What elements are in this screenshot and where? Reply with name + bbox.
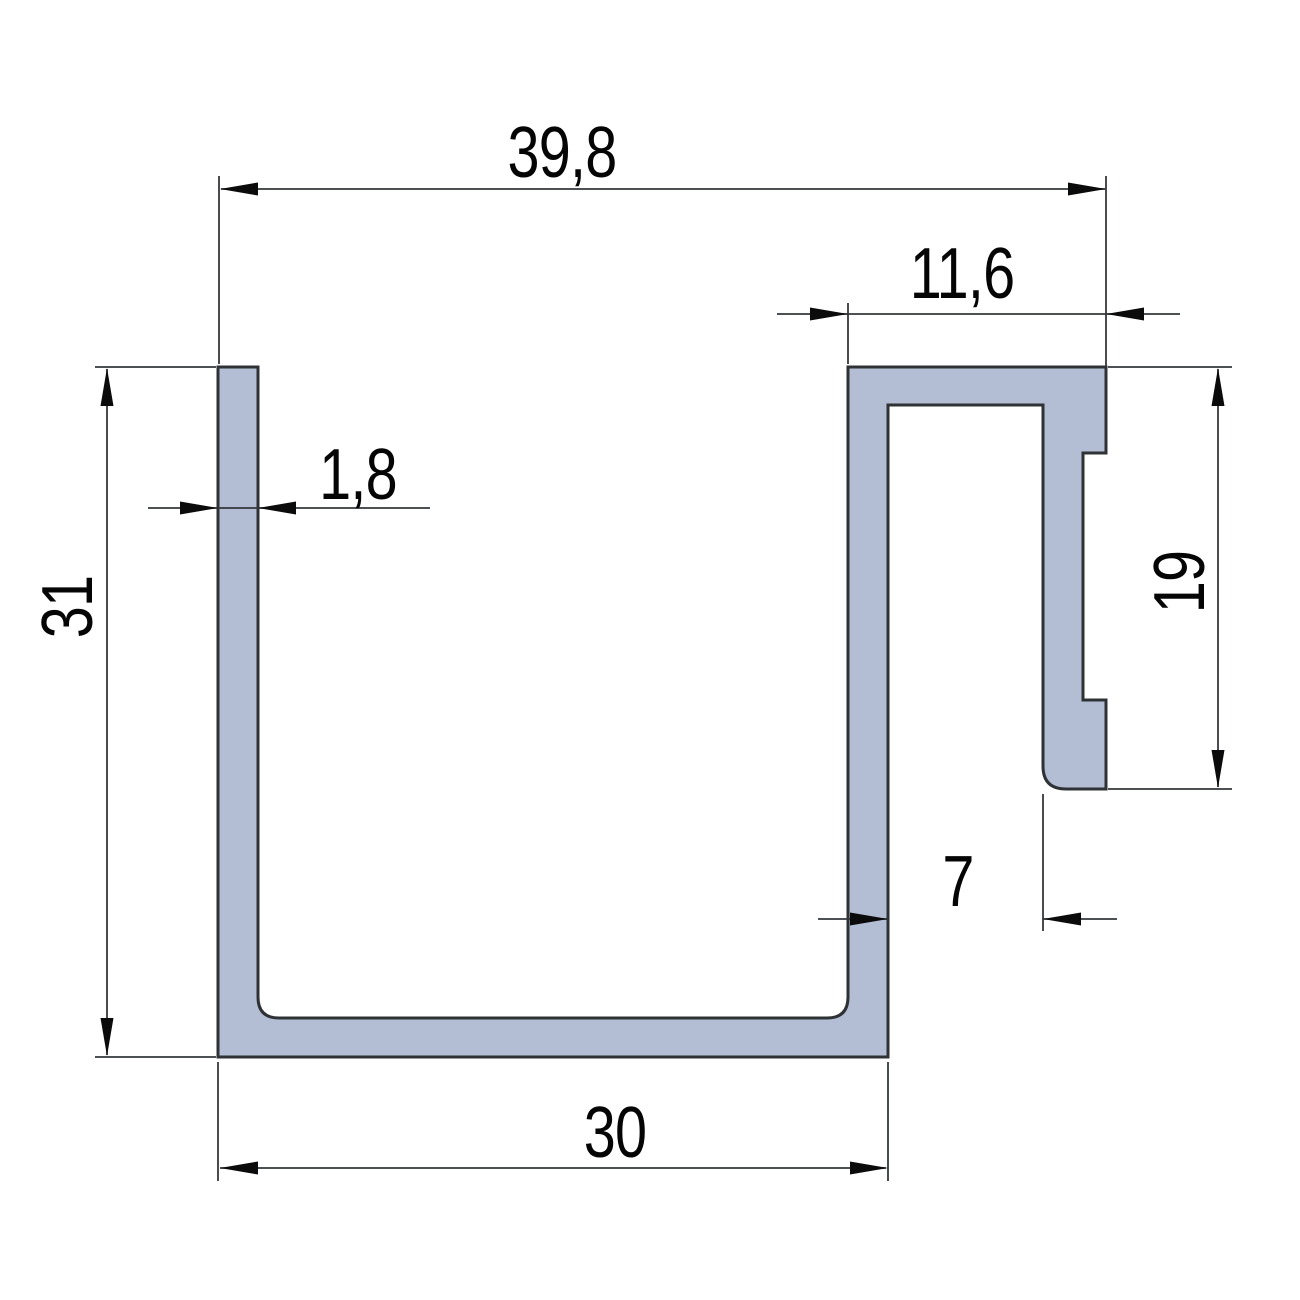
dim-label-overall-height: 31	[27, 576, 108, 638]
arrowhead-right-icon	[850, 1162, 888, 1175]
dim-wall-thickness: 1,8	[148, 434, 430, 515]
arrowhead-right-icon	[1068, 183, 1106, 196]
dim-label-wall-thickness: 1,8	[319, 434, 397, 515]
profile-drawing: 39,8 11,6 1,8 31 19	[0, 0, 1300, 1300]
drawing-page: 39,8 11,6 1,8 31 19	[0, 0, 1300, 1300]
arrowhead-left-icon	[220, 183, 258, 196]
arrowhead-up-icon	[1212, 368, 1225, 406]
dim-label-channel-width: 30	[584, 1092, 646, 1173]
dim-hook-height: 19	[1108, 367, 1232, 789]
arrowhead-up-icon	[101, 368, 114, 406]
dim-channel-width: 30	[218, 1062, 888, 1181]
dim-label-hook-flange-width: 11,6	[910, 233, 1015, 314]
dim-overall-height: 31	[27, 367, 216, 1057]
dim-hook-flange-width: 11,6	[777, 233, 1180, 364]
arrowhead-left-icon	[1106, 308, 1144, 321]
arrowhead-right-icon	[180, 502, 218, 515]
arrowhead-down-icon	[101, 1018, 114, 1056]
dim-label-overall-width: 39,8	[508, 112, 617, 193]
arrowhead-left-icon	[220, 1162, 258, 1175]
arrowhead-right-icon	[810, 308, 848, 321]
arrowhead-left-icon	[258, 502, 296, 515]
dim-label-hook-height: 19	[1139, 551, 1220, 613]
arrowhead-down-icon	[1212, 750, 1225, 788]
arrowhead-left-icon	[1043, 913, 1081, 926]
dim-label-slot-width: 7	[942, 841, 973, 922]
